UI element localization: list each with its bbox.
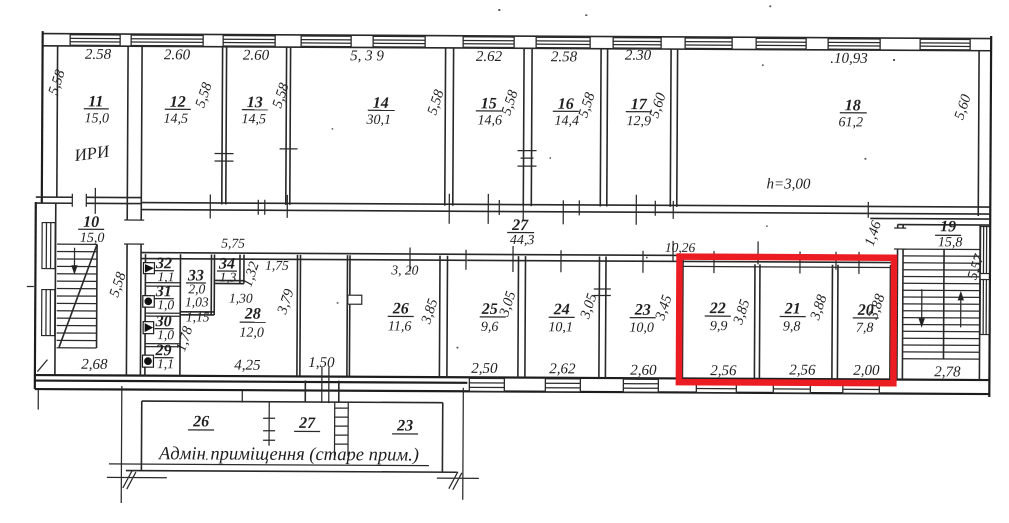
svg-text:30,1: 30,1 (365, 113, 391, 128)
svg-text:26: 26 (392, 300, 409, 317)
svg-text:2,68: 2,68 (81, 357, 108, 373)
svg-text:61,2: 61,2 (838, 115, 863, 130)
svg-text:3, 20: 3, 20 (390, 262, 418, 277)
svg-text:h=3,00: h=3,00 (766, 176, 810, 192)
svg-text:17: 17 (631, 96, 648, 113)
svg-text:24: 24 (553, 301, 570, 318)
svg-text:2,78: 2,78 (934, 364, 961, 380)
svg-text:10,0: 10,0 (629, 321, 654, 336)
svg-text:11,6: 11,6 (388, 319, 412, 334)
svg-text:10,1: 10,1 (548, 320, 573, 335)
svg-text:27: 27 (298, 415, 316, 432)
svg-text:14,5: 14,5 (241, 112, 266, 127)
svg-text:1,1: 1,1 (157, 356, 174, 371)
svg-text:28: 28 (244, 306, 261, 323)
svg-text:14,6: 14,6 (477, 113, 502, 128)
svg-text:25: 25 (481, 301, 498, 318)
svg-text:2.60: 2.60 (243, 48, 270, 64)
svg-text:15,0: 15,0 (80, 231, 105, 246)
svg-text:27: 27 (511, 217, 529, 234)
svg-text:2.58: 2.58 (551, 49, 578, 65)
svg-text:1,15: 1,15 (186, 309, 210, 324)
svg-text:22: 22 (709, 300, 726, 317)
svg-text:14,4: 14,4 (554, 114, 579, 129)
svg-text:4,25: 4,25 (234, 358, 261, 374)
svg-text:19: 19 (940, 218, 956, 235)
svg-text:15,0: 15,0 (84, 111, 109, 126)
svg-text:15,8: 15,8 (938, 235, 963, 250)
svg-text:2.60: 2.60 (164, 47, 191, 63)
svg-text:9,6: 9,6 (481, 320, 499, 335)
svg-text:10: 10 (83, 214, 99, 231)
svg-text:26: 26 (192, 413, 209, 430)
svg-text:2.62: 2.62 (476, 49, 503, 65)
svg-text:1,03: 1,03 (185, 294, 209, 309)
svg-text:10,26: 10,26 (665, 240, 696, 255)
svg-text:1,0: 1,0 (157, 297, 174, 312)
svg-text:1,75: 1,75 (265, 258, 289, 273)
svg-text:2,00: 2,00 (853, 363, 880, 379)
svg-text:2,50: 2,50 (471, 361, 498, 377)
svg-text:16: 16 (558, 96, 574, 113)
svg-text:12,0: 12,0 (239, 326, 264, 341)
svg-text:2,56: 2,56 (710, 363, 737, 379)
svg-text:2,56: 2,56 (789, 362, 816, 378)
svg-text:21: 21 (784, 300, 801, 317)
svg-text:2.30: 2.30 (625, 48, 652, 64)
svg-text:14: 14 (373, 95, 389, 112)
svg-text:1,3: 1,3 (219, 270, 236, 285)
svg-text:1,50: 1,50 (308, 355, 335, 371)
svg-text:1,30: 1,30 (229, 291, 253, 306)
svg-text:18: 18 (845, 97, 861, 114)
svg-text:14,5: 14,5 (163, 112, 188, 127)
svg-text:23: 23 (396, 417, 413, 434)
svg-text:12: 12 (170, 94, 186, 111)
svg-text:Адмін приміщення (старе прим.): Адмін приміщення (старе прим.) (157, 444, 419, 465)
svg-text:11: 11 (88, 93, 103, 110)
svg-text:13: 13 (247, 94, 263, 111)
svg-text:7,8: 7,8 (856, 321, 874, 336)
svg-text:.10,93: .10,93 (830, 51, 868, 67)
svg-text:1,1: 1,1 (157, 269, 174, 284)
svg-text:15: 15 (481, 95, 497, 112)
svg-text:2,62: 2,62 (549, 361, 576, 377)
svg-text:9,9: 9,9 (710, 319, 728, 334)
svg-text:2.58: 2.58 (85, 47, 112, 63)
svg-text:5, 3 9: 5, 3 9 (350, 48, 384, 64)
svg-text:44,3: 44,3 (510, 233, 535, 248)
svg-text:5,75: 5,75 (221, 236, 245, 251)
svg-text:23: 23 (634, 302, 651, 319)
svg-text:2,60: 2,60 (630, 363, 657, 379)
svg-text:9,8: 9,8 (783, 319, 801, 334)
svg-text:1,0: 1,0 (157, 327, 174, 342)
